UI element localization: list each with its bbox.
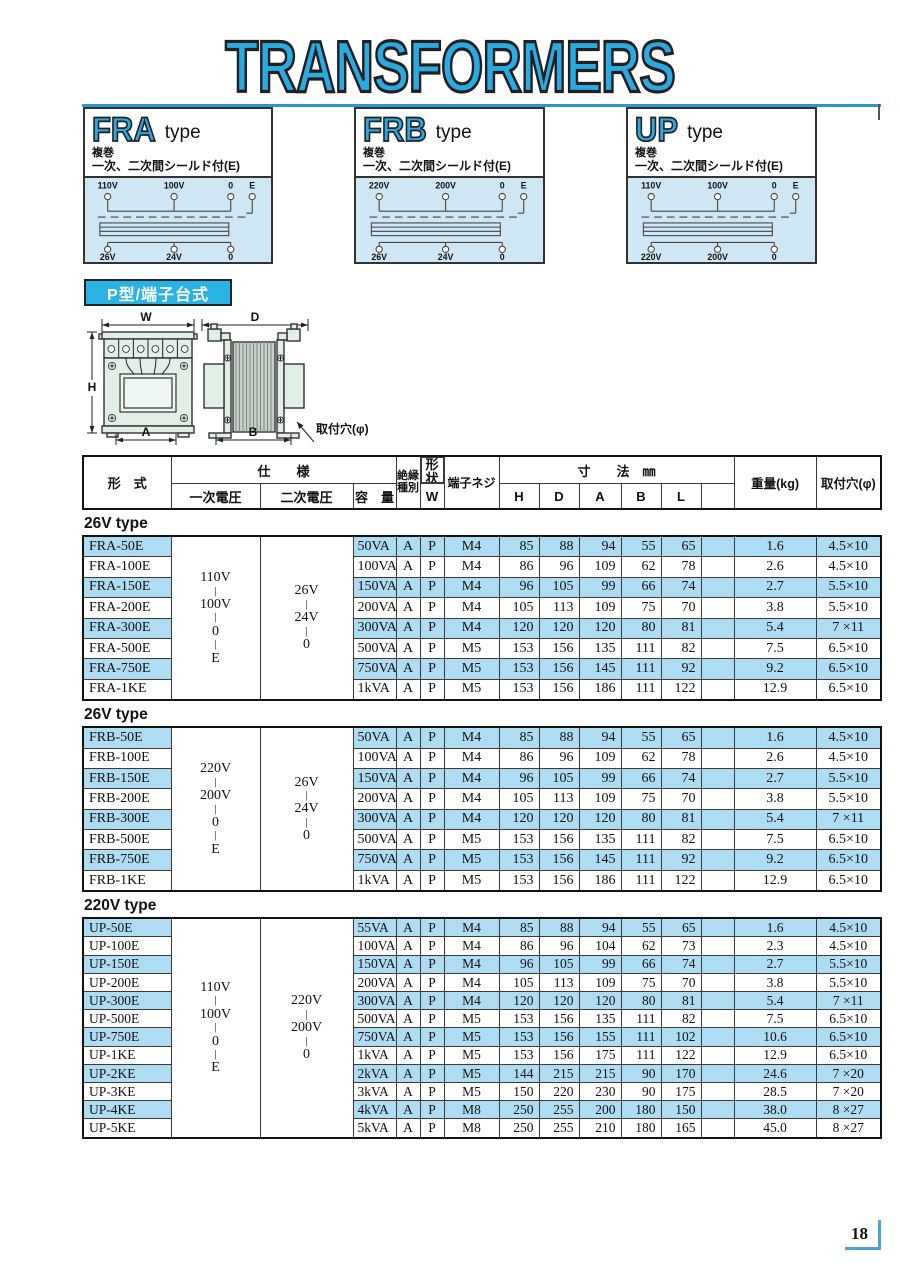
- cell-screw: M5: [444, 1046, 499, 1064]
- cell-cap: 150VA: [353, 955, 396, 973]
- cell-shape: P: [420, 536, 444, 557]
- cell-ins: A: [396, 536, 420, 557]
- cell-ins: A: [396, 992, 420, 1010]
- cell-ins: A: [396, 618, 420, 638]
- cell-shape: P: [420, 1064, 444, 1082]
- cell-w: 153: [499, 870, 539, 891]
- cell-b: 74: [661, 577, 701, 597]
- cell-d: 135: [579, 1010, 621, 1028]
- cell-a: 66: [621, 955, 661, 973]
- cell-hole: 6.5×10: [816, 638, 881, 658]
- cell-a: 111: [621, 870, 661, 891]
- dim-label-h: H: [88, 380, 97, 394]
- cell-b: 70: [661, 789, 701, 809]
- cell-b: 165: [661, 1119, 701, 1138]
- cell-l: [701, 1010, 734, 1028]
- cell-model: UP-4KE: [83, 1101, 171, 1119]
- cell-b: 78: [661, 557, 701, 577]
- header-model: 形 式: [83, 456, 171, 509]
- cell-l: [701, 992, 734, 1010]
- cell-cap: 150VA: [353, 768, 396, 788]
- cell-cap: 200VA: [353, 598, 396, 618]
- cell-screw: M8: [444, 1101, 499, 1119]
- cell-w: 150: [499, 1082, 539, 1100]
- cell-b: 74: [661, 768, 701, 788]
- cell-kg: 5.4: [734, 992, 816, 1010]
- cell-a: 75: [621, 598, 661, 618]
- cell-ins: A: [396, 638, 420, 658]
- header-capacity: 容 量: [353, 484, 396, 510]
- cell-b: 81: [661, 992, 701, 1010]
- cell-screw: M5: [444, 638, 499, 658]
- top-rule-end: [878, 104, 880, 120]
- type-box-frb: FRBtype 複巻 一次、二次間シールド付(E) 220V 200V 0 E …: [354, 107, 545, 264]
- cell-hole: 8 ×27: [816, 1101, 881, 1119]
- voltage-line: 110V: [175, 569, 257, 587]
- cell-model: FRB-500E: [83, 830, 171, 850]
- voltage-separator: |: [175, 831, 257, 840]
- cell-a: 66: [621, 768, 661, 788]
- cell-b: 65: [661, 536, 701, 557]
- cell-screw: M4: [444, 955, 499, 973]
- cell-kg: 2.7: [734, 577, 816, 597]
- header-screw: 端子ネジ: [444, 456, 499, 509]
- cell-l: [701, 638, 734, 658]
- cell-hole: 4.5×10: [816, 937, 881, 955]
- cell-shape: P: [420, 870, 444, 891]
- cell-d: 230: [579, 1082, 621, 1100]
- cell-a: 111: [621, 679, 661, 700]
- type-box-desc2: 一次、二次間シールド付(E): [635, 159, 808, 173]
- cell-h: 96: [539, 557, 579, 577]
- terminal-label: 200V: [707, 252, 728, 262]
- section: 26V type FRA-50E110V|100V|0|E26V|24V|050…: [82, 515, 881, 701]
- voltage-line: E: [175, 1059, 257, 1077]
- cell-b: 78: [661, 748, 701, 768]
- cell-d: 94: [579, 727, 621, 748]
- cell-ins: A: [396, 768, 420, 788]
- cell-l: [701, 748, 734, 768]
- cell-primary-voltage: 220V|200V|0|E: [171, 727, 260, 891]
- cell-w: 85: [499, 536, 539, 557]
- cell-w: 153: [499, 830, 539, 850]
- cell-b: 65: [661, 918, 701, 937]
- cell-model: FRA-150E: [83, 577, 171, 597]
- cell-model: UP-1KE: [83, 1046, 171, 1064]
- voltage-separator: |: [264, 1010, 350, 1019]
- cell-cap: 1kVA: [353, 679, 396, 700]
- cell-screw: M4: [444, 727, 499, 748]
- type-box-fra: FRAtype 複巻 一次、二次間シールド付(E) 110V 100V 0 E …: [83, 107, 273, 264]
- voltage-separator: |: [264, 1037, 350, 1046]
- cell-shape: P: [420, 789, 444, 809]
- terminal-label: 26V: [371, 252, 387, 262]
- cell-l: [701, 1046, 734, 1064]
- cell-cap: 750VA: [353, 1028, 396, 1046]
- cell-screw: M4: [444, 937, 499, 955]
- cell-ins: A: [396, 870, 420, 891]
- cell-w: 96: [499, 768, 539, 788]
- cell-model: UP-2KE: [83, 1064, 171, 1082]
- cell-cap: 200VA: [353, 789, 396, 809]
- cell-d: 175: [579, 1046, 621, 1064]
- cell-a: 90: [621, 1064, 661, 1082]
- cell-hole: 6.5×10: [816, 659, 881, 679]
- cell-b: 170: [661, 1064, 701, 1082]
- cell-screw: M4: [444, 789, 499, 809]
- cell-ins: A: [396, 727, 420, 748]
- cell-screw: M4: [444, 918, 499, 937]
- cell-shape: P: [420, 598, 444, 618]
- cell-model: FRA-500E: [83, 638, 171, 658]
- cell-a: 62: [621, 557, 661, 577]
- cell-l: [701, 1028, 734, 1046]
- cell-hole: 8 ×27: [816, 1119, 881, 1138]
- type-box-desc2: 一次、二次間シールド付(E): [92, 159, 264, 173]
- cell-model: FRA-50E: [83, 536, 171, 557]
- cell-w: 153: [499, 850, 539, 870]
- cell-screw: M5: [444, 659, 499, 679]
- cell-d: 210: [579, 1119, 621, 1138]
- cell-hole: 4.5×10: [816, 748, 881, 768]
- voltage-separator: |: [175, 640, 257, 649]
- type-box-up: UPtype 複巻 一次、二次間シールド付(E) 110V 100V 0 E 2…: [626, 107, 817, 264]
- winding-diagram: 110V 100V 0 E 26V 24V 0: [85, 176, 271, 262]
- cell-b: 122: [661, 1046, 701, 1064]
- cell-w: 153: [499, 638, 539, 658]
- cell-shape: P: [420, 830, 444, 850]
- cell-b: 82: [661, 638, 701, 658]
- voltage-line: 200V: [264, 1019, 350, 1037]
- cell-ins: A: [396, 789, 420, 809]
- cell-a: 75: [621, 789, 661, 809]
- cell-b: 82: [661, 830, 701, 850]
- cell-shape: P: [420, 809, 444, 829]
- cell-h: 215: [539, 1064, 579, 1082]
- winding-diagram: 220V 200V 0 E 26V 24V 0: [356, 176, 543, 262]
- cell-hole: 6.5×10: [816, 1010, 881, 1028]
- cell-d: 94: [579, 536, 621, 557]
- cell-model: FRB-150E: [83, 768, 171, 788]
- cell-h: 96: [539, 937, 579, 955]
- cell-ins: A: [396, 973, 420, 991]
- terminal-label: 24V: [166, 252, 182, 262]
- terminal-label: 0: [228, 181, 233, 191]
- cell-model: FRB-300E: [83, 809, 171, 829]
- header-weight: 重量(kg): [734, 456, 816, 509]
- side-view-drawing: D: [196, 312, 316, 446]
- cell-hole: 6.5×10: [816, 870, 881, 891]
- cell-w: 86: [499, 748, 539, 768]
- cell-ins: A: [396, 598, 420, 618]
- header-primary: 一次電圧: [171, 484, 260, 510]
- cell-h: 88: [539, 536, 579, 557]
- cell-cap: 750VA: [353, 659, 396, 679]
- cell-shape: P: [420, 679, 444, 700]
- cell-w: 153: [499, 1028, 539, 1046]
- terminal-label: 110V: [98, 181, 118, 191]
- cell-d: 145: [579, 659, 621, 679]
- cell-kg: 28.5: [734, 1082, 816, 1100]
- cell-hole: 5.5×10: [816, 598, 881, 618]
- page-title-text: TRANSFORMERS: [225, 26, 675, 109]
- cell-h: 120: [539, 992, 579, 1010]
- cell-shape: P: [420, 1119, 444, 1138]
- cell-w: 144: [499, 1064, 539, 1082]
- terminal-label: 100V: [707, 181, 728, 191]
- cell-l: [701, 577, 734, 597]
- cell-b: 82: [661, 1010, 701, 1028]
- cell-d: 145: [579, 850, 621, 870]
- cell-a: 111: [621, 850, 661, 870]
- cell-ins: A: [396, 850, 420, 870]
- cell-b: 70: [661, 973, 701, 991]
- cell-w: 153: [499, 1010, 539, 1028]
- cell-a: 62: [621, 748, 661, 768]
- cell-l: [701, 768, 734, 788]
- cell-hole: 6.5×10: [816, 1046, 881, 1064]
- cell-ins: A: [396, 748, 420, 768]
- cell-w: 153: [499, 679, 539, 700]
- terminal-label: 220V: [369, 181, 390, 191]
- winding-diagram-svg: 110V 100V 0 E 220V 200V 0: [628, 178, 815, 262]
- header-row-1: 形 式 仕 様 絶縁 種別 形状 端子ネジ 寸 法 ㎜ 重量(kg) 取付穴(φ…: [83, 456, 881, 484]
- data-table: FRB-50E220V|200V|0|E26V|24V|050VAAPM4858…: [82, 726, 882, 892]
- cell-h: 88: [539, 727, 579, 748]
- cell-l: [701, 850, 734, 870]
- cell-screw: M5: [444, 679, 499, 700]
- cell-w: 96: [499, 577, 539, 597]
- cell-a: 62: [621, 937, 661, 955]
- cell-l: [701, 1101, 734, 1119]
- cell-ins: A: [396, 577, 420, 597]
- cell-w: 105: [499, 973, 539, 991]
- front-view-body: [99, 332, 197, 437]
- cell-kg: 10.6: [734, 1028, 816, 1046]
- cell-w: 250: [499, 1119, 539, 1138]
- cell-l: [701, 679, 734, 700]
- cell-d: 109: [579, 598, 621, 618]
- cell-h: 113: [539, 789, 579, 809]
- cell-ins: A: [396, 1010, 420, 1028]
- cell-cap: 1kVA: [353, 870, 396, 891]
- cell-a: 111: [621, 1010, 661, 1028]
- cell-ins: A: [396, 918, 420, 937]
- cell-kg: 5.4: [734, 618, 816, 638]
- cell-l: [701, 937, 734, 955]
- cell-w: 105: [499, 598, 539, 618]
- winding-diagram: 110V 100V 0 E 220V 200V 0: [628, 176, 815, 262]
- cell-d: 200: [579, 1101, 621, 1119]
- cell-shape: P: [420, 992, 444, 1010]
- cell-hole: 6.5×10: [816, 1028, 881, 1046]
- cell-hole: 4.5×10: [816, 727, 881, 748]
- cell-cap: 55VA: [353, 918, 396, 937]
- cell-model: UP-750E: [83, 1028, 171, 1046]
- cell-h: 105: [539, 768, 579, 788]
- cell-shape: P: [420, 638, 444, 658]
- cell-l: [701, 955, 734, 973]
- winding-diagram-svg: 110V 100V 0 E 26V 24V 0: [85, 178, 271, 262]
- header-dim-h: H: [499, 484, 539, 510]
- section: 26V type FRB-50E220V|200V|0|E26V|24V|050…: [82, 706, 881, 892]
- type-box-suffix: type: [165, 122, 201, 143]
- cell-cap: 300VA: [353, 992, 396, 1010]
- cell-shape: P: [420, 1010, 444, 1028]
- cell-kg: 9.2: [734, 850, 816, 870]
- cell-screw: M5: [444, 1028, 499, 1046]
- cell-kg: 2.6: [734, 557, 816, 577]
- cell-ins: A: [396, 1101, 420, 1119]
- cell-l: [701, 1082, 734, 1100]
- cell-secondary-voltage: 26V|24V|0: [260, 536, 353, 700]
- voltage-separator: |: [175, 1023, 257, 1032]
- cell-model: FRB-1KE: [83, 870, 171, 891]
- cell-b: 74: [661, 955, 701, 973]
- cell-b: 92: [661, 659, 701, 679]
- cell-d: 135: [579, 830, 621, 850]
- cell-model: UP-5KE: [83, 1119, 171, 1138]
- cell-l: [701, 870, 734, 891]
- cell-kg: 45.0: [734, 1119, 816, 1138]
- terminal-label: E: [249, 181, 255, 191]
- cell-h: 156: [539, 850, 579, 870]
- cell-shape: P: [420, 659, 444, 679]
- cell-ins: A: [396, 1119, 420, 1138]
- type-box-name: FRB: [363, 110, 427, 150]
- cell-h: 120: [539, 618, 579, 638]
- cell-cap: 200VA: [353, 973, 396, 991]
- header-shape: 形状: [421, 457, 444, 483]
- corner-mark-vertical: [878, 1220, 881, 1250]
- dim-label-b: B: [249, 425, 258, 439]
- type-box-header: FRAtype 複巻 一次、二次間シールド付(E): [85, 109, 271, 176]
- cell-hole: 5.5×10: [816, 768, 881, 788]
- cell-screw: M4: [444, 768, 499, 788]
- section-title: 220V type: [84, 897, 881, 915]
- terminal-label: 0: [228, 252, 233, 262]
- cell-a: 111: [621, 638, 661, 658]
- cell-shape: P: [420, 1101, 444, 1119]
- cell-hole: 7 ×20: [816, 1082, 881, 1100]
- header-insulation: 絶縁 種別: [396, 456, 420, 509]
- cell-w: 86: [499, 557, 539, 577]
- cell-d: 120: [579, 992, 621, 1010]
- cell-kg: 12.9: [734, 1046, 816, 1064]
- cell-cap: 2kVA: [353, 1064, 396, 1082]
- data-table: UP-50E110V|100V|0|E220V|200V|055VAAPM485…: [82, 917, 882, 1138]
- cell-d: 120: [579, 618, 621, 638]
- cell-b: 70: [661, 598, 701, 618]
- type-box-suffix: type: [687, 122, 723, 143]
- cell-shape: P: [420, 973, 444, 991]
- voltage-separator: |: [264, 627, 350, 636]
- cell-ins: A: [396, 679, 420, 700]
- cell-screw: M5: [444, 830, 499, 850]
- header-dim-l: L: [661, 484, 701, 510]
- dim-label-d: D: [251, 312, 260, 324]
- cell-kg: 1.6: [734, 727, 816, 748]
- header-dim-b: B: [621, 484, 661, 510]
- cell-a: 111: [621, 1046, 661, 1064]
- cell-l: [701, 536, 734, 557]
- voltage-separator: |: [264, 600, 350, 609]
- cell-cap: 100VA: [353, 748, 396, 768]
- cell-hole: 4.5×10: [816, 536, 881, 557]
- cell-shape: P: [420, 557, 444, 577]
- cell-l: [701, 973, 734, 991]
- cell-kg: 9.2: [734, 659, 816, 679]
- cell-kg: 12.9: [734, 679, 816, 700]
- cell-l: [701, 918, 734, 937]
- cell-ins: A: [396, 955, 420, 973]
- corner-mark-horizontal: [845, 1247, 881, 1250]
- cell-h: 96: [539, 748, 579, 768]
- cell-shape: P: [420, 955, 444, 973]
- cell-h: 105: [539, 955, 579, 973]
- cell-model: UP-150E: [83, 955, 171, 973]
- cell-l: [701, 618, 734, 638]
- cell-h: 156: [539, 870, 579, 891]
- cell-shape: P: [420, 937, 444, 955]
- cell-l: [701, 809, 734, 829]
- cell-kg: 2.7: [734, 768, 816, 788]
- cell-screw: M4: [444, 809, 499, 829]
- terminal-label: E: [793, 181, 799, 191]
- cell-d: 215: [579, 1064, 621, 1082]
- cell-ins: A: [396, 937, 420, 955]
- winding-diagram-svg: 220V 200V 0 E 26V 24V 0: [356, 178, 543, 262]
- cell-d: 186: [579, 870, 621, 891]
- terminal-label: 100V: [164, 181, 185, 191]
- cell-screw: M4: [444, 598, 499, 618]
- cell-cap: 4kVA: [353, 1101, 396, 1119]
- cell-model: FRB-100E: [83, 748, 171, 768]
- cell-model: FRB-750E: [83, 850, 171, 870]
- header-dim-a: A: [579, 484, 621, 510]
- cell-kg: 38.0: [734, 1101, 816, 1119]
- cell-l: [701, 598, 734, 618]
- voltage-line: 0: [264, 1046, 350, 1064]
- cell-cap: 1kVA: [353, 1046, 396, 1064]
- cell-a: 55: [621, 918, 661, 937]
- cell-hole: 6.5×10: [816, 679, 881, 700]
- cell-b: 81: [661, 618, 701, 638]
- cell-b: 73: [661, 937, 701, 955]
- cell-a: 111: [621, 659, 661, 679]
- type-box-desc2: 一次、二次間シールド付(E): [363, 159, 536, 173]
- table-row: UP-50E110V|100V|0|E220V|200V|055VAAPM485…: [83, 918, 881, 937]
- cell-ins: A: [396, 557, 420, 577]
- cell-w: 120: [499, 992, 539, 1010]
- cell-h: 105: [539, 577, 579, 597]
- cell-shape: P: [420, 1082, 444, 1100]
- terminal-label: 0: [772, 181, 777, 191]
- cell-hole: 7 ×20: [816, 1064, 881, 1082]
- cell-b: 81: [661, 809, 701, 829]
- front-view-drawing: W H: [86, 312, 198, 446]
- voltage-separator: |: [175, 996, 257, 1005]
- cell-w: 86: [499, 937, 539, 955]
- type-box-suffix: type: [436, 122, 472, 143]
- cell-h: 88: [539, 918, 579, 937]
- cell-h: 156: [539, 1046, 579, 1064]
- cell-d: 94: [579, 918, 621, 937]
- terminal-label: 200V: [435, 181, 456, 191]
- cell-h: 255: [539, 1101, 579, 1119]
- cell-l: [701, 659, 734, 679]
- cell-a: 80: [621, 809, 661, 829]
